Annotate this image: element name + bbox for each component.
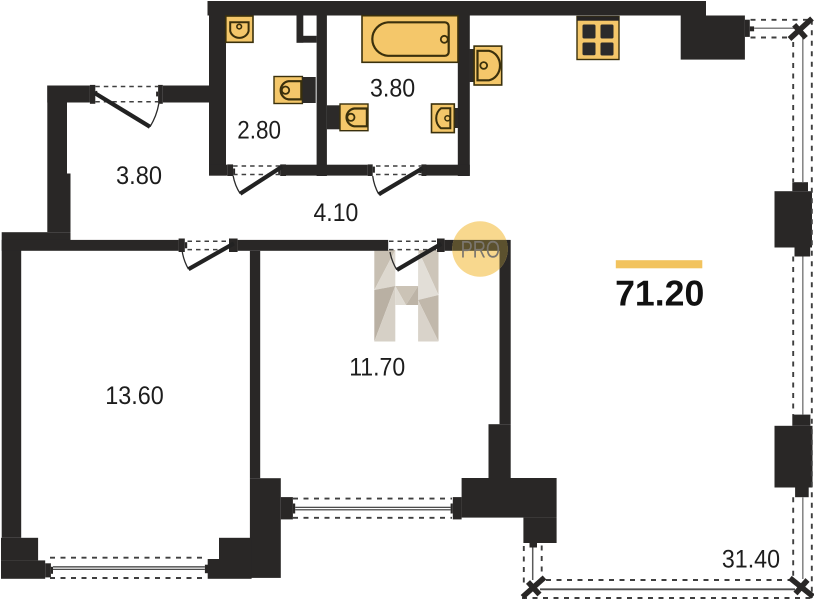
svg-text:11.70: 11.70 [349, 354, 405, 382]
svg-text:3.80: 3.80 [370, 74, 415, 102]
svg-text:31.40: 31.40 [722, 546, 780, 574]
svg-text:PRO: PRO [461, 237, 501, 264]
svg-text:71.20: 71.20 [615, 272, 704, 313]
svg-text:4.10: 4.10 [314, 199, 359, 227]
svg-text:13.60: 13.60 [105, 382, 164, 410]
svg-text:2.80: 2.80 [237, 117, 281, 145]
svg-text:3.80: 3.80 [116, 162, 162, 190]
